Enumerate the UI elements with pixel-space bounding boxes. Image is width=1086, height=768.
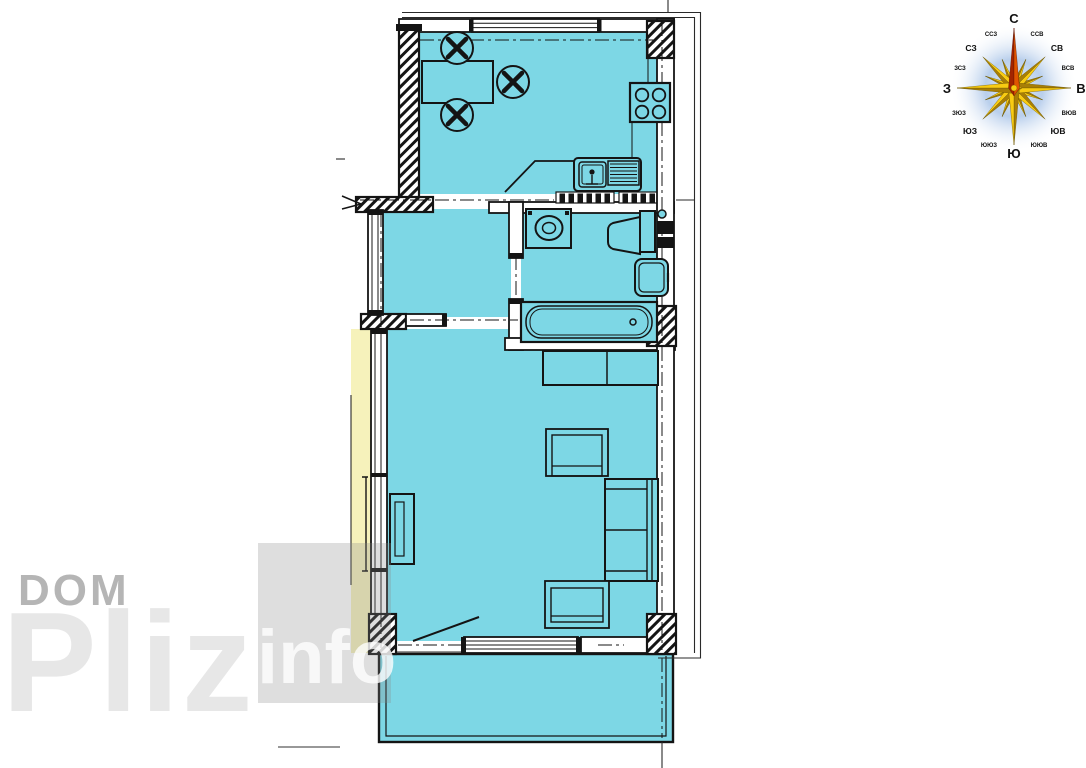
floorplan-page: С Ю З В СЗ СВ ЮЗ ЮВ ССЗ ССВ ЗСЗ ВСВ ЗЮЗ … (0, 0, 1086, 768)
compass-label-sse: ЮЮВ (1031, 143, 1048, 149)
compass-label-e: В (1076, 81, 1085, 96)
vent-shaft-left (556, 192, 614, 203)
room-hall (379, 209, 511, 317)
kitchen-window (469, 19, 602, 32)
compass-label-wsw: ЗЮЗ (952, 111, 966, 117)
compass-label-ne: СВ (1051, 43, 1063, 53)
stove (630, 83, 670, 122)
wardrobe (390, 494, 414, 564)
dining-table (422, 61, 493, 103)
armchair (545, 581, 609, 628)
faucet (589, 169, 594, 174)
compass-rose: С Ю З В СЗ СВ ЮЗ ЮВ ССЗ ССВ ЗСЗ ВСВ ЗЮЗ … (938, 8, 1086, 160)
drainboard (608, 161, 639, 185)
compass-label-ene: ВСВ (1062, 66, 1075, 72)
watermark-info: info (257, 620, 396, 696)
chair (441, 99, 473, 131)
watermark-pliz: Pliz (2, 592, 255, 734)
compass-label-sw: ЮЗ (963, 126, 977, 136)
compass-label-n: С (1009, 11, 1019, 26)
balcony (379, 654, 673, 742)
washing-machine (526, 209, 571, 248)
compass-label-nw: СЗ (965, 43, 976, 53)
compass-label-ssw: ЮЮЗ (981, 143, 997, 149)
sofa (605, 479, 658, 581)
hall-bottom-wall (361, 314, 406, 329)
compass-label-s: Ю (1007, 146, 1020, 160)
bathtub (521, 302, 657, 342)
vent-shaft-right (619, 192, 662, 203)
armchair (546, 429, 608, 476)
kitchen-left-wall (399, 26, 419, 200)
compass-label-w: З (943, 81, 951, 96)
chair (497, 66, 529, 98)
compass-label-wnw: ЗСЗ (954, 66, 966, 72)
dresser (543, 351, 658, 385)
compass-label-nnw: ССЗ (985, 32, 998, 38)
washbasin (635, 259, 668, 296)
compass-label-se: ЮВ (1051, 126, 1066, 136)
compass-label-nne: ССВ (1031, 32, 1045, 38)
compass-label-ese: ВЮВ (1062, 111, 1078, 117)
chair (441, 32, 473, 64)
